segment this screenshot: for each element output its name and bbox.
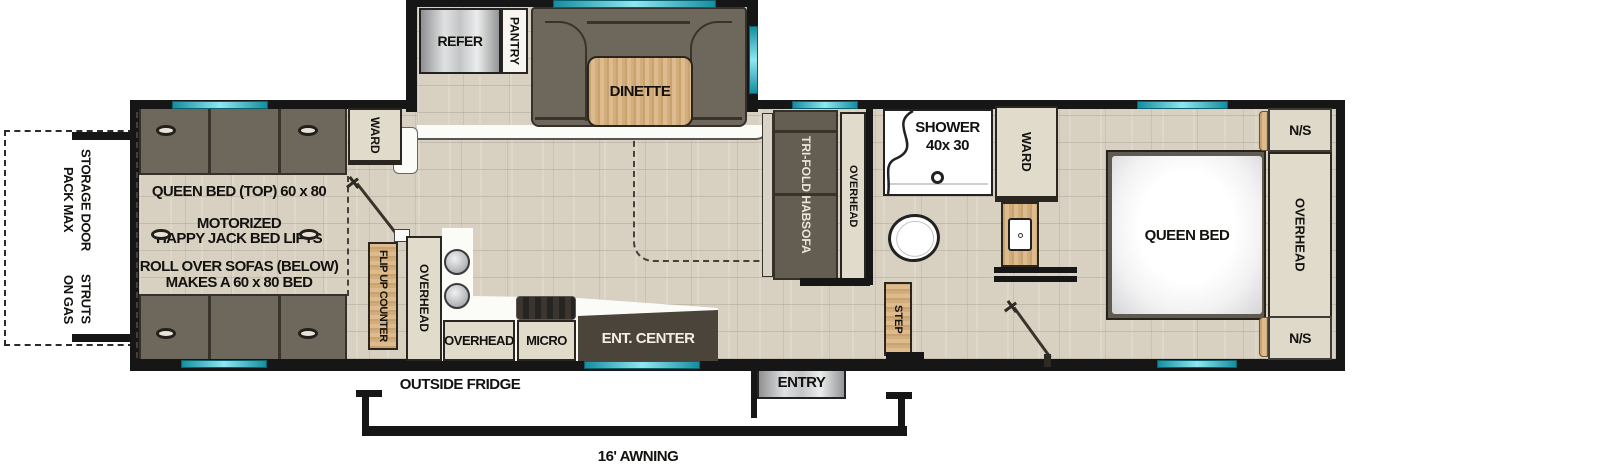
- dinette-sofa-seam-left: [545, 21, 587, 121]
- trifold-sofa-label-line2: SOFA: [797, 221, 814, 254]
- awning-bar: [362, 426, 907, 436]
- bed-lift-button-left: [151, 229, 171, 240]
- shower-drain: [931, 171, 944, 184]
- garage-sofa-bottom: [139, 294, 347, 359]
- window: [749, 26, 758, 94]
- bedroom-door-stop: [1044, 354, 1051, 367]
- refrigerator: REFER: [419, 8, 501, 74]
- bath-wardrobe: WARD: [995, 106, 1058, 202]
- half-wall: [800, 278, 870, 286]
- pantry-label: PANTRY: [508, 17, 522, 65]
- sofa-button: [298, 328, 318, 339]
- sofa-button: [298, 125, 318, 136]
- slide-floor-edge: [417, 125, 769, 140]
- kitchen-overhead: OVERHEAD: [443, 320, 515, 361]
- trifold-sofa-label-line1: TRI-FOLD HAB: [797, 136, 814, 221]
- entry-step: STEP: [884, 282, 912, 356]
- pantry: PANTRY: [501, 8, 528, 74]
- flip-up-counter: FLIP UP COUNTER: [368, 242, 398, 350]
- storage-label-line1: PACK MAX STORAGE DOOR: [59, 138, 94, 262]
- nightstand-post-bottom: [1259, 317, 1268, 357]
- cooktop: [516, 296, 576, 320]
- kitchen-sink: [444, 283, 470, 309]
- slide-clearance-dash: [633, 136, 775, 262]
- sofa-cushion-seam: [278, 109, 281, 173]
- garage-note-queen-bed: QUEEN BED (TOP) 60 x 80: [133, 184, 345, 199]
- bath-wardrobe-label: WARD: [1019, 132, 1034, 172]
- window: [553, 0, 716, 8]
- awning-label: 16' AWNING: [553, 447, 723, 465]
- garage-sofa-top: [139, 109, 347, 175]
- rv-floorplan: PACK MAX STORAGE DOOR ON GAS STRUTS 16' …: [0, 0, 1600, 466]
- bed-lift-button-right: [299, 229, 319, 240]
- garage-note-rollover: ROLL OVER SOFAS (BELOW): [133, 259, 345, 274]
- trifold-sofa-edge: [762, 113, 773, 277]
- entry-step-threshold: [886, 352, 924, 360]
- sofa-button: [156, 125, 176, 136]
- flip-up-counter-label: FLIP UP COUNTER: [377, 250, 389, 342]
- garage-wardrobe-label: WARD: [368, 117, 382, 154]
- nightstand-post-top: [1259, 111, 1268, 151]
- sofa-cushion-seam: [278, 296, 281, 359]
- awning-right-stem: [898, 392, 905, 436]
- dinette-sofa-seam-right: [690, 21, 732, 121]
- sofa-button: [156, 328, 176, 339]
- awning-left-cap: [356, 390, 382, 397]
- kitchen-overhead-tall: OVERHEAD: [406, 236, 442, 361]
- awning-left-stem: [362, 390, 369, 430]
- trifold-sofa: TRI-FOLD HAB SOFA: [773, 110, 838, 280]
- kitchen-overhead-tall-label: OVERHEAD: [417, 264, 431, 332]
- bath-half-wall-bar: [994, 276, 1077, 282]
- window: [172, 101, 268, 109]
- microwave: MICRO: [517, 320, 576, 361]
- shower-label-size: 40x 30: [926, 138, 969, 153]
- sofa-cushion-seam: [208, 109, 211, 173]
- kitchen-sink: [444, 249, 470, 275]
- dinette-table: DINETTE: [587, 56, 693, 127]
- shower-label: SHOWER 40x 30: [905, 118, 990, 154]
- queen-bed-mattress: QUEEN BED: [1112, 156, 1262, 314]
- window: [181, 360, 267, 368]
- bedroom-overhead-label: OVERHEAD: [1293, 198, 1308, 272]
- shower-label-name: SHOWER: [915, 120, 980, 135]
- bath-half-wall-bar: [994, 267, 1077, 273]
- window: [1137, 101, 1228, 109]
- vanity: [1001, 202, 1039, 267]
- window: [1157, 360, 1237, 368]
- living-overhead-label: OVERHEAD: [847, 165, 859, 227]
- sofa-cushion-seam: [208, 296, 211, 359]
- bathroom-wall: [866, 101, 873, 285]
- dinette-sofa-seam-top: [587, 21, 690, 24]
- garage-wardrobe: WARD: [348, 108, 402, 165]
- window: [792, 101, 858, 109]
- storage-label-line2: ON GAS STRUTS: [59, 262, 94, 336]
- vanity-sink: [1008, 218, 1032, 251]
- entry-step-label: STEP: [892, 305, 904, 334]
- nightstand-top: N/S: [1268, 108, 1332, 152]
- bedroom-overhead: OVERHEAD: [1268, 152, 1332, 318]
- garage-floor-dash-right: [347, 176, 349, 296]
- entertainment-center-label: ENT. CENTER: [578, 318, 718, 358]
- window: [584, 361, 700, 369]
- trifold-sofa-label: TRI-FOLD HAB SOFA: [775, 112, 836, 278]
- garage-note-makes-bed: MAKES A 60 x 80 BED: [133, 275, 345, 290]
- nightstand-bottom: N/S: [1268, 316, 1332, 360]
- outside-fridge-label: OUTSIDE FRIDGE: [398, 375, 522, 393]
- vanity-drain: [1018, 233, 1023, 238]
- living-overhead: OVERHEAD: [840, 112, 866, 280]
- storage-label: PACK MAX STORAGE DOOR ON GAS STRUTS: [46, 138, 108, 336]
- toilet-seat-line: [894, 218, 937, 259]
